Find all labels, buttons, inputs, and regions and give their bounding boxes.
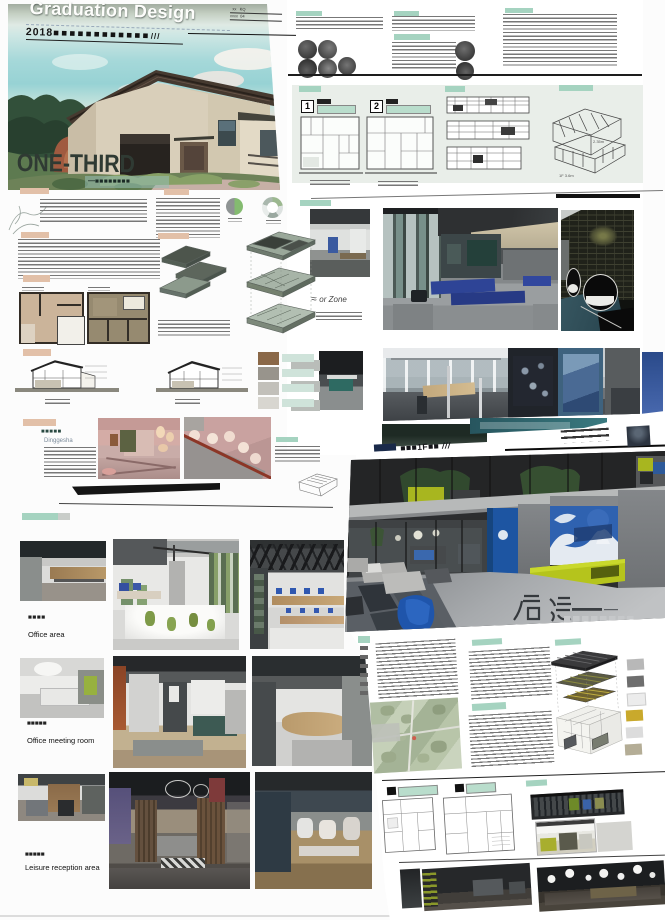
svg-text:1F 3.6m: 1F 3.6m [559, 173, 574, 178]
svg-text:2.35m: 2.35m [593, 139, 605, 144]
